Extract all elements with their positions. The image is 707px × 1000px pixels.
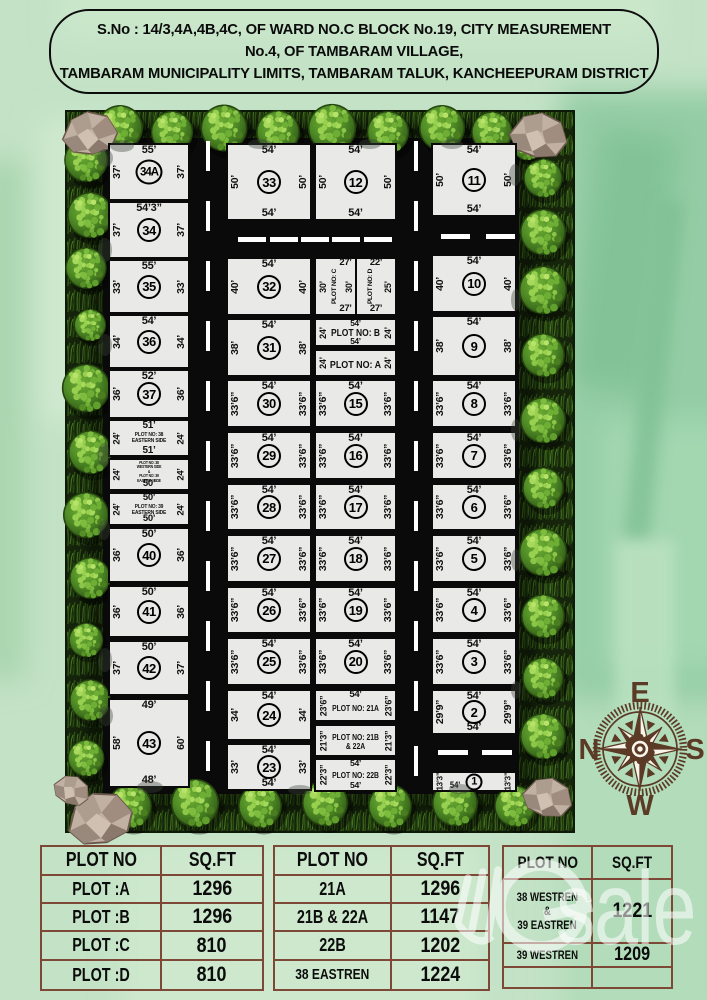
- svg-text:sale: sale: [556, 849, 695, 966]
- svg-text:E: E: [630, 678, 649, 709]
- svg-text:W: W: [626, 790, 654, 818]
- svg-text:N: N: [579, 734, 600, 766]
- svg-text:S: S: [685, 734, 704, 766]
